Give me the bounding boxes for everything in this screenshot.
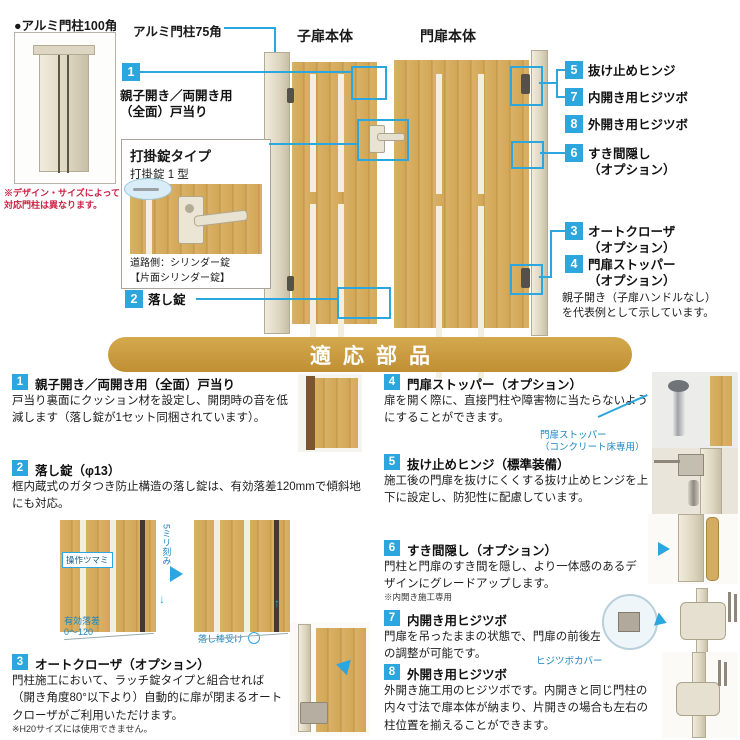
rc-line [556, 69, 565, 71]
lock-lever [377, 133, 405, 141]
hinge-plate [678, 454, 704, 476]
section-3-header: 3 オートクローザ（オプション） [12, 654, 210, 673]
section-8-badge: 8 [384, 664, 400, 680]
callout-4-badge: 4 [565, 255, 583, 273]
section-6-badge: 6 [384, 540, 400, 556]
door-slat [338, 74, 344, 192]
section-8-header: 8 外開き用ヒジツボ [384, 664, 507, 683]
section-7-image [600, 588, 740, 658]
section-2-title: 落し錠（φ13） [35, 460, 120, 479]
section-2-image-after [194, 520, 290, 632]
drop-bolt-slot [274, 520, 279, 632]
arrow-up-icon: ↑ [274, 596, 280, 610]
pillar-body [39, 54, 89, 172]
step-label: 5ミリ刻み [160, 524, 171, 565]
section-1-title: 親子開き／両開き用（全面）戸当り [35, 374, 235, 393]
door-slat [478, 74, 484, 194]
key-inset [124, 178, 172, 200]
section-4-title: 門扉ストッパー（オプション） [407, 374, 582, 393]
pivot-bracket [618, 612, 640, 632]
section-6-title: すき間隠し（オプション） [407, 540, 557, 559]
callout-5-label: 抜け止めヒンジ [588, 63, 676, 79]
drop-range-label: 有効落差 0〜120 [64, 616, 100, 639]
section-4-image [652, 372, 738, 450]
knob-label: 操作ツマミ [62, 552, 113, 568]
door-slat [214, 520, 220, 632]
section-2-badge: 2 [12, 460, 28, 476]
section-6-image [648, 514, 738, 584]
doorstop-strip [306, 376, 315, 450]
pivot-cover [680, 602, 726, 640]
section-5-body: 施工後の門扉を抜けにくくする抜け止めヒンジを上下に設定し、防犯性に配慮しています… [384, 473, 652, 508]
section-7-title: 内開き用ヒジツボ [407, 610, 507, 629]
pillar-groove [67, 55, 69, 173]
section-5-header: 5 抜け止めヒンジ（標準装備） [384, 454, 570, 473]
pillar75-label: アルミ門柱75角 [133, 21, 222, 40]
door-slat [436, 74, 442, 194]
rc-line [540, 152, 565, 154]
callout-6-badge: 6 [565, 144, 583, 162]
hinge-pin [654, 460, 680, 463]
key-icon [133, 188, 159, 191]
callout-box-gapcover [511, 141, 544, 169]
section-3-image [290, 622, 370, 736]
callout-8-badge: 8 [565, 115, 583, 133]
door-slat [310, 74, 316, 192]
section-1-badge: 1 [12, 374, 28, 390]
callout-4-label: 門扉ストッパー （オプション） [588, 257, 676, 290]
pillar100-photo [14, 32, 116, 184]
callout-box-hinge-top [510, 66, 543, 106]
main-door-panel [394, 60, 529, 328]
section-7-badge: 7 [384, 610, 400, 626]
detail-inset-circle [602, 594, 658, 650]
callout-3-badge: 3 [565, 222, 583, 240]
section-8-body: 外開き施工用のヒジツボです。内開きと同じ門柱の内々寸法で扉本体が納まり、片開きの… [384, 683, 658, 735]
hinge [287, 276, 294, 291]
door-slat [244, 520, 250, 632]
pivot-pin [728, 592, 731, 622]
latch-lock-caption: 道路側：シリンダー錠 【片面シリンダー錠】 [130, 257, 230, 286]
section-5-title: 抜け止めヒンジ（標準装備） [407, 454, 570, 473]
section-banner: 適応部品 [108, 337, 632, 372]
arrow-right-icon [170, 566, 183, 582]
arrow-right-icon [658, 542, 670, 556]
section-3-body: 門柱施工において、ラッチ錠タイプと組合せれば（開き角度80°以下より）自動的に扉… [12, 673, 284, 725]
auto-closer-unit [300, 702, 328, 724]
rc-line [539, 82, 557, 84]
callout-box-dropbolt [337, 287, 391, 319]
pivot-pin [718, 660, 721, 686]
section-6-note: ※内開き施工専用 [384, 591, 452, 603]
stopper-label: 門扉ストッパー （コンクリート床専用） [540, 430, 645, 454]
rc-line [556, 96, 565, 98]
section-7-header: 7 内開き用ヒジツボ [384, 610, 507, 629]
hinge-cover-label: ヒジツボカバー [536, 656, 603, 668]
section-2-header: 2 落し錠（φ13） [12, 460, 120, 479]
section-3-badge: 3 [12, 654, 28, 670]
pivot-pin [724, 662, 727, 686]
rc-line [550, 230, 565, 232]
section-5-badge: 5 [384, 454, 400, 470]
callout-6-label: すき間隠し （オプション） [588, 146, 676, 179]
gap-cover-strip [706, 517, 719, 581]
section-5-image [652, 448, 738, 522]
section-2-body: 框内蔵式のガタつき防止構造の落し錠は、有効落差120mmで傾斜地にも対応。 [12, 479, 364, 514]
gate-post [678, 514, 704, 582]
latch-lock-title: 打掛錠タイプ [130, 145, 211, 165]
section-1-image [298, 374, 362, 452]
child-door-header: 子扉本体 [297, 26, 353, 46]
main-door-header: 門扉本体 [420, 26, 476, 46]
callout-7-label: 内開き用ヒジツボ [588, 90, 688, 106]
drop-bolt-slot [140, 520, 145, 632]
lock-line [269, 143, 357, 145]
section-1-body: 戸当り裏面にクッション材を設定し、開閉時の音を低減します（落し錠が1セット同梱さ… [12, 393, 294, 428]
callout-box-lock [357, 119, 409, 161]
rc-line [556, 69, 558, 98]
callout-8-label: 外開き用ヒジツボ [588, 117, 688, 133]
callout-3-label: オートクローザ （オプション） [588, 224, 676, 257]
section-3-title: オートクローザ（オプション） [35, 654, 210, 673]
catalog-page: ●アルミ門柱100角 ※デザイン・サイズによって 対応門柱は異なります。 アルミ… [0, 0, 740, 740]
callout-box-doorstop [351, 66, 387, 100]
section-8-image [662, 652, 738, 738]
callout-1-line [140, 71, 351, 73]
stopper-cap [668, 380, 689, 392]
receiver-circle-icon [248, 632, 260, 644]
pillar-groove [58, 55, 60, 173]
callout-box-hinge-bottom [510, 264, 543, 295]
section-1-header: 1 親子開き／両開き用（全面）戸当り [12, 374, 292, 393]
lock-cylinder [185, 204, 194, 213]
representative-note: 親子開き（子扉ハンドルなし） を代表例として示しています。 [562, 291, 738, 322]
callout-5-badge: 5 [565, 61, 583, 79]
section-6-header: 6 すき間隠し（オプション） [384, 540, 557, 559]
section-8-title: 外開き用ヒジツボ [407, 664, 507, 683]
callout-2-badge: 2 [125, 290, 143, 308]
pillar-note: ※デザイン・サイズによって 対応門柱は異なります。 [4, 187, 126, 211]
stopper-cylinder [672, 388, 685, 436]
pivot-cover [676, 682, 720, 716]
callout-2-line [196, 298, 337, 300]
child-door-panel [292, 62, 377, 324]
pivot-pin [734, 594, 737, 622]
hinge [287, 88, 294, 103]
arrow-down-icon: ↓ [159, 592, 165, 606]
banner-title: 適応部品 [298, 340, 442, 370]
pillar75-line [224, 27, 276, 29]
hinge-barrel [688, 480, 699, 506]
door-edge [710, 376, 732, 446]
door-slat [110, 520, 116, 632]
latch-lock-box: 打掛錠タイプ 打掛錠 1 型 道路側：シリンダー錠 【片面シリンダー錠】 [121, 139, 271, 289]
section-4-badge: 4 [384, 374, 400, 390]
section-3-note: ※H20サイズには使用できません。 [12, 722, 153, 735]
callout-1-badge: 1 [122, 63, 140, 81]
callout-7-badge: 7 [565, 88, 583, 106]
callout-2-label: 落し錠 [148, 292, 186, 308]
rc-line [550, 230, 552, 278]
door-panel [312, 378, 358, 448]
pillar75-line-v [274, 27, 276, 53]
section-4-header: 4 門扉ストッパー（オプション） [384, 374, 582, 393]
callout-1-label: 親子開き／両開き用 （全面）戸当り [120, 88, 233, 121]
